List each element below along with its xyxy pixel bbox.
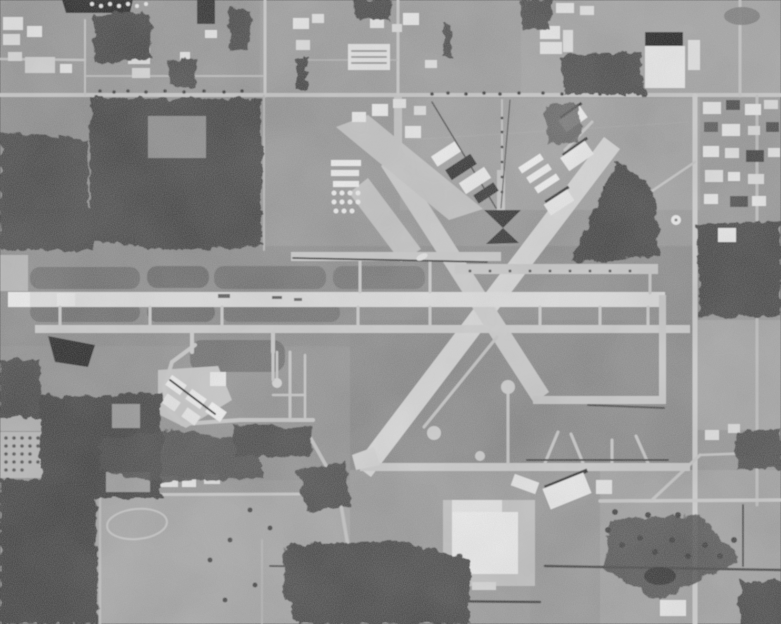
aerial-photo [0, 0, 781, 624]
photo-film-grain [0, 0, 781, 624]
aerial-photo-frame [0, 0, 781, 624]
